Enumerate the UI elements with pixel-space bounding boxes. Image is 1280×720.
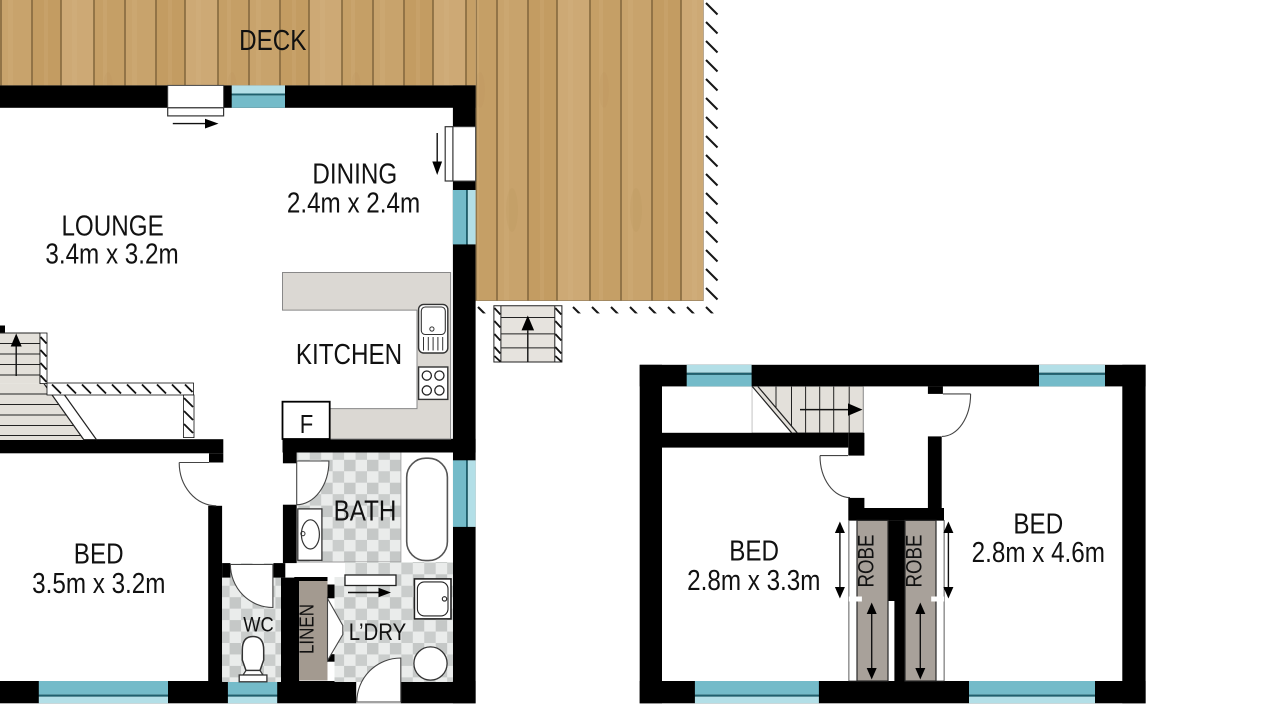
svg-text:BATH: BATH — [334, 495, 397, 527]
svg-text:ROBE: ROBE — [855, 535, 879, 588]
svg-text:WC: WC — [243, 613, 273, 637]
svg-text:2.4m x 2.4m: 2.4m x 2.4m — [287, 187, 420, 219]
svg-text:BED: BED — [1013, 507, 1063, 539]
svg-text:3.5m x 3.2m: 3.5m x 3.2m — [32, 567, 165, 599]
svg-text:L’DRY: L’DRY — [349, 618, 407, 645]
svg-text:DINING: DINING — [312, 158, 397, 190]
svg-text:3.4m x 3.2m: 3.4m x 3.2m — [45, 238, 178, 270]
svg-text:LINEN: LINEN — [295, 604, 318, 654]
svg-text:BED: BED — [74, 538, 124, 570]
svg-text:F: F — [300, 410, 313, 439]
svg-text:KITCHEN: KITCHEN — [296, 338, 402, 370]
svg-text:2.8m x 3.3m: 2.8m x 3.3m — [687, 564, 820, 596]
svg-text:2.8m x 4.6m: 2.8m x 4.6m — [972, 536, 1105, 568]
svg-text:DECK: DECK — [239, 24, 307, 56]
svg-text:BED: BED — [729, 535, 779, 567]
svg-text:ROBE: ROBE — [903, 535, 927, 588]
